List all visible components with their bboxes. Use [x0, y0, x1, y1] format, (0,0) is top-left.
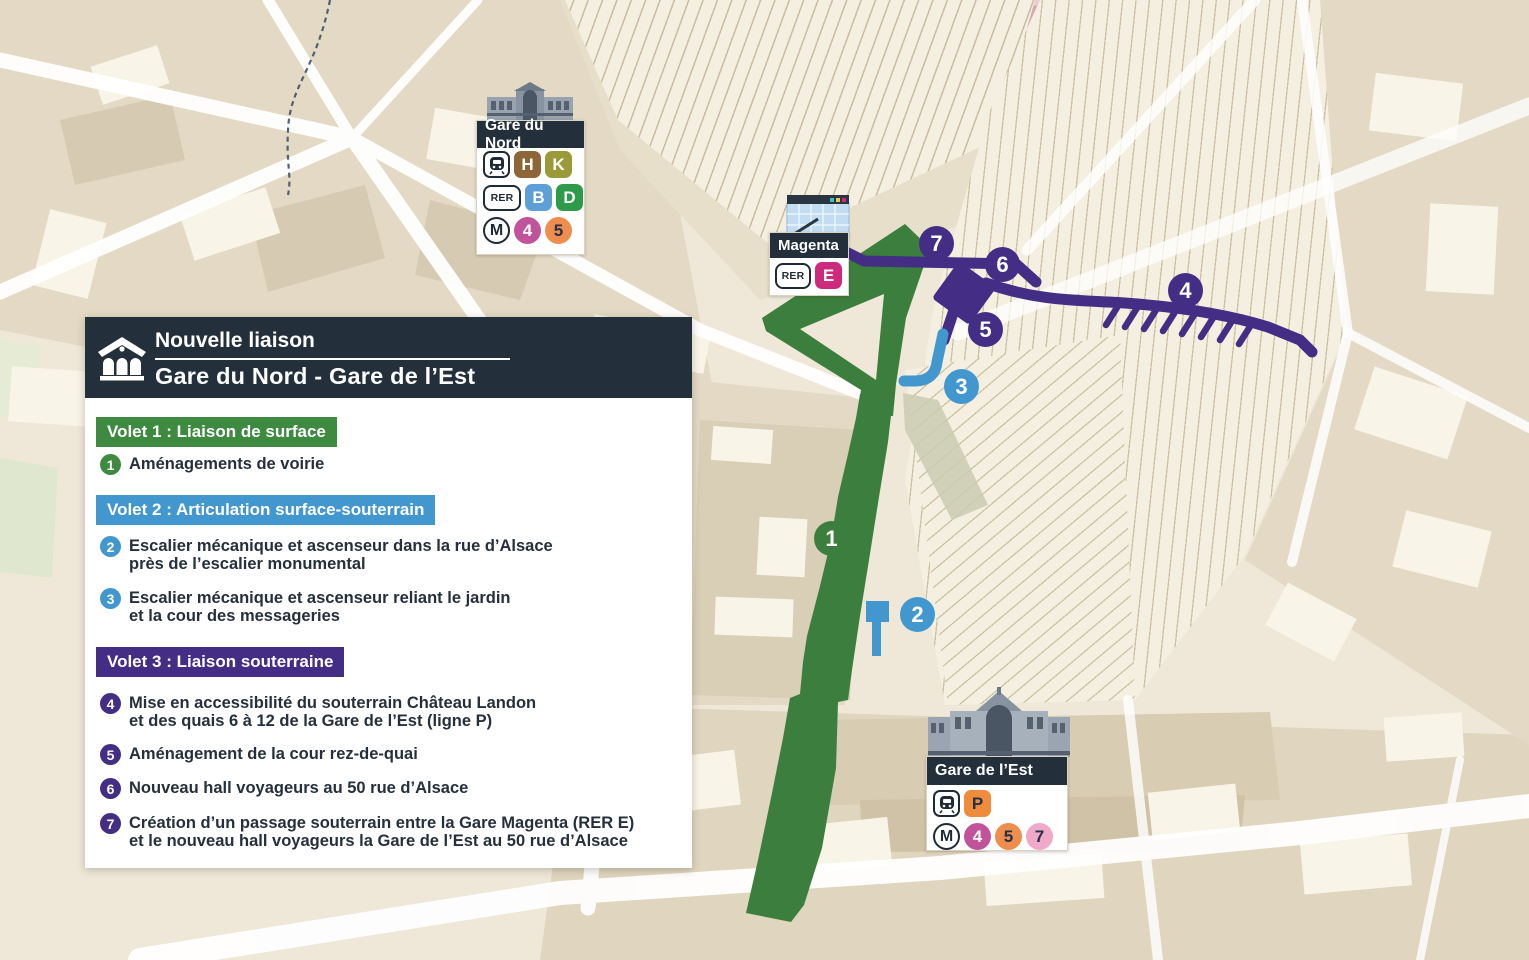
legend-item-1-line1: Aménagements de voirie [129, 455, 324, 473]
transilien-train-icon [933, 790, 960, 817]
line-k-chip: K [545, 151, 572, 178]
legend-item-5-number: 5 [100, 744, 121, 765]
rer-icon: RER [775, 263, 811, 289]
station-house-icon [98, 337, 146, 381]
legend-item-4-number: 4 [100, 693, 121, 714]
legend-item-6-number: 6 [100, 778, 121, 799]
station-badge-magenta: Magenta RER E [769, 232, 849, 296]
legend-item-5-line1: Aménagement de la cour rez-de-quai [129, 745, 418, 763]
legend-item-7: 7 Création d’un passage souterrain entre… [100, 814, 634, 850]
connector-blue [904, 334, 943, 381]
legend-item-3-text: Escalier mécanique et ascenseur reliant … [129, 589, 511, 625]
legend-item-2: 2 Escalier mécanique et ascenseur dans l… [100, 537, 553, 573]
route-surface-green-band [746, 394, 893, 922]
line-4-chip: 4 [964, 823, 991, 850]
map-marker-2: 2 [900, 597, 935, 632]
map-marker-6: 6 [985, 247, 1020, 282]
map-canvas: 1 2 3 4 5 6 7 Gare du Nord H K RER B D [0, 0, 1529, 960]
legend-item-6: 6 Nouveau hall voyageurs au 50 rue d’Als… [100, 779, 468, 799]
legend-item-6-line1: Nouveau hall voyageurs au 50 rue d’Alsac… [129, 779, 468, 797]
line-h-chip: H [514, 151, 541, 178]
legend-item-5: 5 Aménagement de la cour rez-de-quai [100, 745, 418, 765]
map-marker-5: 5 [968, 312, 1003, 347]
map-marker-3: 3 [944, 369, 979, 404]
legend-item-7-line1: Création d’un passage souterrain entre l… [129, 814, 634, 832]
legend-item-1-number: 1 [100, 454, 121, 475]
station-badge-gare-du-nord: Gare du Nord H K RER B D M 4 5 [476, 120, 585, 255]
marker-1-number: 1 [814, 521, 849, 556]
line-b-chip: B [525, 184, 552, 211]
marker-2-number: 2 [900, 597, 935, 632]
line-d-chip: D [556, 184, 583, 211]
legend-item-7-line2: et le nouveau hall voyageurs la Gare de … [129, 832, 628, 850]
magenta-name: Magenta [770, 233, 848, 258]
rer-icon: RER [483, 185, 521, 211]
legend-item-2-line1: Escalier mécanique et ascenseur dans la … [129, 537, 553, 555]
legend-item-4-line1: Mise en accessibilité du souterrain Chât… [129, 694, 536, 712]
marker-6-number: 6 [985, 247, 1020, 282]
line-5-chip: 5 [545, 217, 572, 244]
legend-panel-body: Volet 1 : Liaison de surface 1 Aménageme… [85, 398, 692, 868]
marker-4-number: 4 [1168, 273, 1203, 308]
line-5-chip: 5 [995, 823, 1022, 850]
jardin-area [903, 393, 988, 520]
marker-7-number: 7 [919, 226, 954, 261]
marker-3-number: 3 [944, 369, 979, 404]
legend-item-5-text: Aménagement de la cour rez-de-quai [129, 745, 418, 763]
section-volet-1-badge: Volet 1 : Liaison de surface [96, 417, 337, 447]
marker-5-number: 5 [968, 312, 1003, 347]
legend-item-7-text: Création d’un passage souterrain entre l… [129, 814, 634, 850]
legend-item-7-number: 7 [100, 813, 121, 834]
legend-panel-header: Nouvelle liaison Gare du Nord - Gare de … [85, 317, 692, 398]
legend-item-4-text: Mise en accessibilité du souterrain Chât… [129, 694, 536, 730]
legend-item-3: 3 Escalier mécanique et ascenseur relian… [100, 589, 511, 625]
gare-de-l-est-facade-icon [928, 687, 1070, 757]
section-volet-3-badge: Volet 3 : Liaison souterraine [96, 647, 344, 677]
transilien-train-icon [483, 151, 510, 178]
map-marker-4: 4 [1168, 273, 1203, 308]
panel-title-line1: Nouvelle liaison [155, 329, 315, 353]
legend-item-2-line2: près de l’escalier monumental [129, 555, 366, 573]
gare-du-nord-name: Gare du Nord [477, 121, 584, 148]
gare-de-l-est-name: Gare de l’Est [927, 757, 1067, 785]
line-7-chip: 7 [1026, 823, 1053, 850]
line-p-chip: P [964, 790, 991, 817]
legend-item-3-line2: et la cour des messageries [129, 607, 340, 625]
section-volet-2-badge: Volet 2 : Articulation surface-souterrai… [96, 495, 435, 525]
map-marker-7: 7 [919, 226, 954, 261]
legend-item-1-text: Aménagements de voirie [129, 455, 324, 473]
station-badge-gare-de-l-est: Gare de l’Est P M 4 5 7 [926, 756, 1068, 851]
legend-item-4-line2: et des quais 6 à 12 de la Gare de l’Est … [129, 712, 492, 730]
legend-item-3-line1: Escalier mécanique et ascenseur reliant … [129, 589, 511, 607]
escalator-flag-blue [866, 601, 889, 656]
line-4-chip: 4 [514, 217, 541, 244]
metro-icon: M [933, 823, 960, 850]
panel-title-divider [155, 358, 510, 360]
legend-item-3-number: 3 [100, 588, 121, 609]
map-marker-1: 1 [814, 521, 849, 556]
legend-item-2-number: 2 [100, 536, 121, 557]
line-e-chip: E [815, 262, 842, 289]
legend-item-1: 1 Aménagements de voirie [100, 455, 324, 475]
panel-title-line2: Gare du Nord - Gare de l’Est [155, 363, 475, 390]
legend-item-2-text: Escalier mécanique et ascenseur dans la … [129, 537, 553, 573]
metro-icon: M [483, 217, 510, 244]
legend-item-4: 4 Mise en accessibilité du souterrain Ch… [100, 694, 536, 730]
legend-panel: Nouvelle liaison Gare du Nord - Gare de … [85, 317, 692, 868]
legend-item-6-text: Nouveau hall voyageurs au 50 rue d’Alsac… [129, 779, 468, 797]
